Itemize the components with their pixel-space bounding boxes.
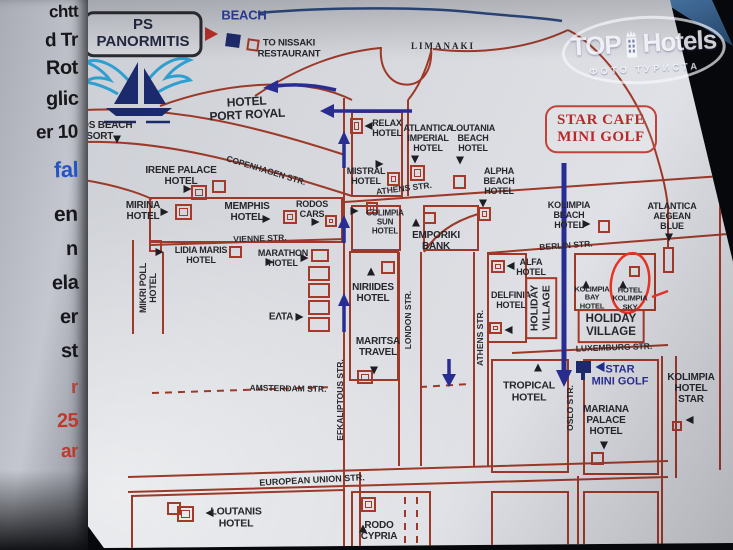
street-oslo: OSLO STR.	[566, 385, 576, 431]
hotel-marathon: MARATHON HOTEL	[258, 248, 308, 268]
hotel-mirina: MIRINA HOTEL	[126, 200, 160, 222]
aegean-marker	[665, 234, 673, 247]
hotel-port-royal: HOTEL PORT ROYAL	[209, 94, 286, 125]
neighbor-fragment-8: ela	[51, 272, 78, 296]
hotel-colimpia-sun: COLIMPIA SUN HOTEL	[366, 210, 404, 237]
hotel-mariana-palace: MARIANA PALACE HOTEL	[583, 404, 629, 438]
street-vienne: VIENNE STR.	[233, 233, 287, 244]
nissaki-navy-box	[225, 33, 241, 48]
hotel-alfa: ALFA HOTEL	[516, 257, 546, 277]
shops-box-1	[308, 266, 330, 281]
niriides-box	[381, 261, 395, 274]
neighbor-page-strip: chttd TrRotglicer 10falennelaerstr25ar	[0, 0, 88, 550]
niriides-marker	[367, 263, 375, 276]
mikri-marker	[156, 248, 169, 256]
label-to-nissaki: TO NISSAKI RESTAURANT	[258, 38, 321, 59]
kolimpia-star-marker	[681, 416, 694, 424]
shops-box-4	[308, 317, 330, 332]
tophotels-watermark: TOP Hotels ФОТО ТУРИСТА	[556, 10, 732, 99]
hotel-tropical: TROPICAL HOTEL	[503, 380, 555, 404]
hotel-alpha-beach: ALPHA BEACH HOTEL	[483, 166, 514, 196]
label-emporiki-bank: EMPORIKI BANK	[412, 230, 460, 252]
ps-arrow	[205, 27, 227, 41]
corner-box	[167, 502, 181, 515]
mariana-marker	[600, 442, 608, 455]
street-london: LONDON STR.	[404, 291, 414, 350]
kolimpia-beach-box	[598, 220, 610, 233]
label-limanaki: LIMANAKI	[411, 41, 475, 51]
neighbor-fragment-2: Rot	[46, 57, 78, 81]
memphis-box	[283, 210, 297, 224]
neighbor-fragment-13: ar	[61, 441, 79, 463]
hotel-kolimpia-sky: HOTEL KOLIMPIA SKY	[612, 286, 647, 311]
label-star-mini-golf: STAR MINI GOLF	[592, 364, 649, 389]
hotel-lidia-maris: LIDIA MARIS HOTEL	[175, 245, 227, 265]
box-holiday-village-vertical: HOLIDAY VILLAGE	[525, 277, 557, 339]
kolimpia-sky-box	[629, 266, 640, 277]
star-golf-pole	[581, 372, 585, 380]
alpha-marker	[479, 200, 487, 213]
watermark-top-text: TOP	[570, 29, 622, 63]
neighbor-fragment-1: d Tr	[45, 30, 78, 53]
label-elta: ΕΛΤΑ	[269, 311, 293, 322]
hotel-irene-palace: IRENE PALACE HOTEL	[145, 165, 216, 187]
rodos-cars-marker	[312, 218, 325, 226]
mirina-box	[175, 204, 192, 220]
hotel-loutania-beach: LOUTANIA BEACH HOTEL	[451, 123, 495, 153]
sign-ps-panormitis: PS PANORMITIS	[83, 11, 202, 57]
lidia-box	[229, 246, 242, 258]
hotel-kolimpia-bay: KOLIMPIA BAY HOTEL	[574, 285, 609, 310]
shops-box-2	[308, 283, 330, 298]
tropical-marker	[534, 359, 542, 372]
neighbor-fragment-6: en	[54, 203, 78, 228]
street-athens-vertical: ATHENS STR.	[476, 310, 486, 366]
shops-box-3	[308, 300, 330, 315]
map-photo: PS PANORMITISBEACHTO NISSAKI RESTAURANTL…	[0, 0, 733, 550]
atlantica-imperial-marker	[411, 156, 419, 169]
rodo-box	[361, 497, 376, 512]
hotel-loutanis: LOUTANIS HOTEL	[210, 506, 261, 530]
tower-icon	[622, 30, 641, 59]
hotel-atlantica-aegean: ATLANTICA AEGEAN BLUE	[647, 201, 696, 231]
alfa-marker	[502, 262, 515, 270]
marathon-box	[311, 249, 329, 262]
box-holiday-village: HOLIDAY VILLAGE	[578, 309, 645, 343]
hotel-atlantica-imperial: ATLANTICA IMPERIAL HOTEL	[403, 123, 452, 153]
sign-star-cafe: STAR CAFE MINI GOLF	[545, 105, 657, 153]
delfinia-marker	[500, 326, 513, 334]
hotel-kolimpia-star: KOLIMPIA HOTEL STAR	[667, 372, 714, 406]
neighbor-fragment-7: n	[66, 238, 78, 261]
relax-marker	[360, 122, 373, 130]
loutania-marker	[456, 157, 464, 170]
neighbor-shade	[0, 470, 88, 550]
hotel-memphis: MEMPHIS HOTEL	[224, 201, 269, 223]
hotel-rodo-cypria: RODO CYPRIA	[361, 520, 398, 542]
label-maritsa-travel: MARITSA TRAVEL	[356, 336, 400, 358]
neighbor-fragment-9: er	[60, 306, 79, 329]
neighbor-fragment-10: st	[61, 340, 78, 363]
hotel-mikri-poll: MIKRI POLL HOTEL	[138, 263, 158, 313]
street-efkaliptous: EFKALIPTOUS STR.	[336, 359, 346, 441]
neighbor-fragment-3: glic	[45, 88, 78, 112]
label-beach: BEACH	[221, 9, 266, 24]
neighbor-fragment-12: 25	[56, 410, 78, 434]
emporiki-box	[423, 212, 436, 224]
loutania-box	[453, 175, 466, 189]
street-amsterdam: AMSTERDAM STR.	[249, 384, 326, 395]
neighbor-fragment-5: fal	[53, 157, 78, 184]
hotel-mistral: MISTRAL HOTEL	[347, 166, 386, 186]
maritsa-marker	[370, 367, 378, 380]
aegean-building-box	[663, 247, 674, 273]
hotel-relax: RELAX HOTEL	[372, 118, 402, 138]
watermark-hotels-text: Hotels	[642, 24, 717, 59]
elta-marker	[296, 313, 309, 321]
label-rodos-cars: RODOS CARS	[296, 199, 328, 219]
neighbor-fragment-0: chtt	[49, 2, 79, 23]
colimpia-sun-marker	[351, 207, 364, 215]
emporiki-marker	[412, 214, 420, 227]
hotel-niriides: NIRIIDES HOTEL	[352, 282, 394, 304]
hotel-kolimpia-beach: KOLIMPIA BEACH HOTEL	[548, 200, 590, 230]
neighbor-fragment-11: r	[71, 377, 78, 399]
mirina-marker	[161, 208, 174, 216]
neighbor-fragment-4: er 10	[36, 121, 78, 144]
